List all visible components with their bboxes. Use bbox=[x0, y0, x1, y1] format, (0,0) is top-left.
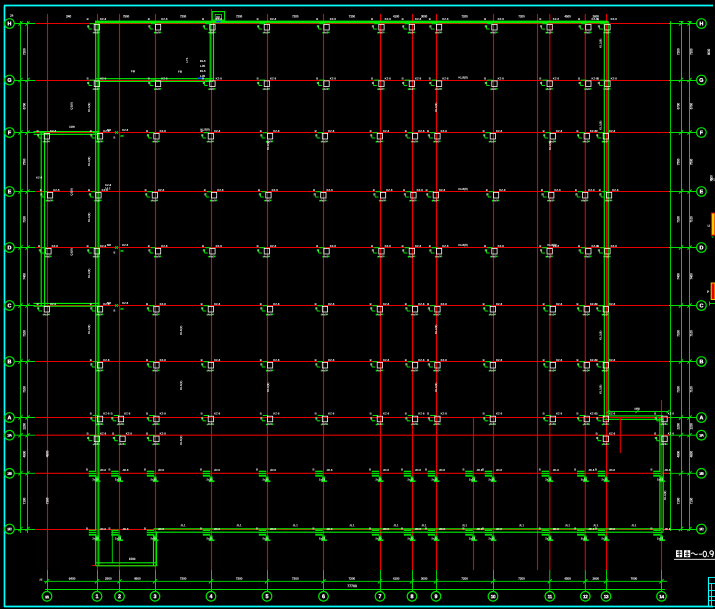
svg-text:B: B bbox=[86, 526, 88, 530]
svg-text:B: B bbox=[369, 526, 371, 530]
svg-text:2x15: 2x15 bbox=[601, 478, 608, 482]
svg-text:R: R bbox=[370, 135, 372, 138]
svg-text:KZ-8: KZ-8 bbox=[328, 358, 335, 362]
svg-text:R: R bbox=[485, 250, 487, 253]
svg-text:7200: 7200 bbox=[180, 577, 187, 581]
svg-text:KZ-8: KZ-8 bbox=[330, 17, 337, 21]
svg-text:KZ-8: KZ-8 bbox=[216, 244, 223, 248]
svg-text:B: B bbox=[462, 467, 464, 471]
svg-text:4x0: 4x0 bbox=[208, 368, 213, 372]
svg-text:B: B bbox=[370, 358, 372, 362]
svg-text:M8: M8 bbox=[107, 128, 111, 132]
svg-text:KZ-8: KZ-8 bbox=[556, 412, 563, 416]
svg-text:KZ-8: KZ-8 bbox=[609, 358, 616, 362]
svg-text:9: 9 bbox=[434, 594, 437, 600]
svg-text:Q1(8): Q1(8) bbox=[70, 248, 74, 255]
svg-text:4x0: 4x0 bbox=[434, 139, 439, 143]
svg-text:4x0: 4x0 bbox=[585, 30, 590, 34]
svg-text:A: A bbox=[699, 415, 703, 421]
svg-text:B: B bbox=[146, 358, 148, 362]
svg-text:2x15: 2x15 bbox=[115, 537, 122, 541]
svg-text:7400: 7400 bbox=[690, 273, 694, 280]
svg-text:B: B bbox=[256, 467, 258, 471]
svg-text:B: B bbox=[539, 244, 541, 248]
svg-text:2x15: 2x15 bbox=[431, 537, 438, 541]
svg-text:KL1(9): KL1(9) bbox=[266, 141, 270, 150]
svg-text:2x15: 2x15 bbox=[150, 537, 157, 541]
svg-text:R: R bbox=[543, 135, 545, 138]
svg-text:B: B bbox=[596, 358, 598, 362]
svg-text:KZ-8: KZ-8 bbox=[553, 76, 560, 80]
svg-text:4x0: 4x0 bbox=[380, 198, 385, 202]
svg-text:JD-8: JD-8 bbox=[158, 527, 165, 531]
svg-text:B: B bbox=[596, 302, 598, 306]
svg-text:B: B bbox=[38, 244, 40, 248]
svg-text:B: B bbox=[114, 135, 116, 139]
svg-text:JD-8: JD-8 bbox=[439, 527, 446, 531]
svg-text:B: B bbox=[370, 412, 372, 416]
svg-text:4x0: 4x0 bbox=[209, 254, 214, 258]
svg-text:B: B bbox=[483, 302, 485, 306]
svg-text:JD-8: JD-8 bbox=[553, 527, 560, 531]
svg-text:B: B bbox=[539, 526, 541, 530]
svg-text:B: B bbox=[88, 188, 90, 192]
svg-text:JD-8: JD-8 bbox=[664, 527, 671, 531]
svg-text:JL1: JL1 bbox=[565, 523, 571, 527]
svg-text:B: B bbox=[87, 76, 89, 80]
svg-text:KZ-8: KZ-8 bbox=[439, 188, 446, 192]
svg-text:KZ-8: KZ-8 bbox=[417, 188, 424, 192]
svg-text:7200: 7200 bbox=[690, 48, 694, 55]
svg-text:7100: 7100 bbox=[690, 216, 694, 223]
svg-text:B: B bbox=[597, 244, 599, 248]
svg-text:G: G bbox=[7, 78, 11, 84]
svg-text:4x0: 4x0 bbox=[45, 254, 50, 258]
svg-text:KZ-8: KZ-8 bbox=[327, 188, 334, 192]
svg-text:R: R bbox=[201, 135, 203, 138]
svg-text:JL1: JL1 bbox=[593, 523, 599, 527]
svg-text:4x0: 4x0 bbox=[118, 422, 123, 426]
svg-text:KZ.8: KZ.8 bbox=[122, 128, 129, 132]
svg-text:R: R bbox=[315, 417, 317, 420]
svg-text:R: R bbox=[405, 135, 407, 138]
svg-text:KZ-8: KZ-8 bbox=[124, 412, 131, 416]
svg-text:KL1(9): KL1(9) bbox=[599, 121, 603, 130]
svg-text:R: R bbox=[260, 364, 262, 367]
svg-text:R: R bbox=[483, 364, 485, 367]
svg-text:240: 240 bbox=[66, 15, 71, 19]
svg-text:KZ-8: KZ-8 bbox=[270, 76, 277, 80]
svg-text:R: R bbox=[428, 364, 430, 367]
svg-text:L30: L30 bbox=[200, 74, 206, 78]
svg-text:7500: 7500 bbox=[23, 158, 27, 165]
svg-text:KZ-8: KZ-8 bbox=[160, 358, 167, 362]
svg-text:KZ-8: KZ-8 bbox=[498, 244, 505, 248]
svg-text:A: A bbox=[8, 415, 12, 421]
svg-text:KZ-8: KZ-8 bbox=[609, 432, 616, 436]
svg-text:2200: 2200 bbox=[690, 423, 694, 430]
svg-text:7100: 7100 bbox=[23, 386, 27, 393]
svg-text:B: B bbox=[543, 129, 545, 133]
svg-text:B: B bbox=[146, 129, 148, 133]
svg-text:7100: 7100 bbox=[677, 386, 681, 393]
svg-text:KL1(9): KL1(9) bbox=[87, 103, 91, 112]
svg-text:EL5: EL5 bbox=[200, 69, 206, 73]
svg-text:R: R bbox=[317, 250, 319, 253]
svg-text:2x15: 2x15 bbox=[92, 478, 99, 482]
svg-text:R: R bbox=[147, 437, 149, 440]
svg-text:JL1: JL1 bbox=[631, 523, 637, 527]
svg-text:4x0: 4x0 bbox=[97, 368, 102, 372]
svg-text:KZ-8: KZ-8 bbox=[612, 188, 619, 192]
svg-text:KL1(9): KL1(9) bbox=[87, 325, 91, 334]
svg-text:7100: 7100 bbox=[690, 386, 694, 393]
svg-text:JD-8: JD-8 bbox=[496, 468, 503, 472]
svg-text:4x0: 4x0 bbox=[265, 198, 270, 202]
svg-text:KZ-8: KZ-8 bbox=[330, 244, 337, 248]
svg-text:7500: 7500 bbox=[690, 158, 694, 165]
svg-text:KZ-8: KZ-8 bbox=[385, 17, 392, 21]
svg-text:4x0: 4x0 bbox=[436, 30, 441, 34]
svg-text:B: B bbox=[539, 76, 541, 80]
svg-text:B: B bbox=[654, 432, 656, 436]
svg-text:JD-8: JD-8 bbox=[476, 468, 483, 472]
svg-text:R: R bbox=[90, 364, 92, 367]
svg-text:B: B bbox=[114, 250, 116, 254]
svg-text:R: R bbox=[405, 308, 407, 311]
svg-text:KZ-8: KZ-8 bbox=[158, 188, 165, 192]
svg-text:H: H bbox=[8, 21, 12, 27]
svg-text:R: R bbox=[596, 364, 598, 367]
svg-text:KZ-8: KZ-8 bbox=[270, 17, 277, 21]
svg-text:B: B bbox=[108, 526, 110, 530]
svg-text:KZ-8: KZ-8 bbox=[273, 358, 280, 362]
svg-text:4x0: 4x0 bbox=[606, 198, 611, 202]
svg-text:KZ-8: KZ-8 bbox=[328, 302, 335, 306]
svg-text:KL1(9): KL1(9) bbox=[434, 103, 438, 112]
svg-text:4x0: 4x0 bbox=[412, 139, 417, 143]
svg-text:4x0: 4x0 bbox=[94, 87, 99, 91]
svg-text:KL8(9): KL8(9) bbox=[547, 243, 556, 247]
svg-text:B: B bbox=[427, 412, 429, 416]
svg-text:B: B bbox=[541, 188, 543, 192]
svg-text:B: B bbox=[484, 17, 486, 21]
svg-text:JD-8: JD-8 bbox=[158, 468, 165, 472]
svg-text:R: R bbox=[90, 135, 92, 138]
svg-text:B: B bbox=[371, 17, 373, 21]
svg-text:JL1: JL1 bbox=[519, 523, 525, 527]
svg-text:7100: 7100 bbox=[690, 498, 694, 505]
svg-text:B: B bbox=[403, 188, 405, 192]
svg-text:R: R bbox=[37, 308, 39, 311]
svg-text:JL1: JL1 bbox=[462, 523, 468, 527]
svg-text:4x0: 4x0 bbox=[436, 254, 441, 258]
svg-text:R: R bbox=[203, 82, 205, 85]
svg-text:R: R bbox=[540, 26, 542, 29]
svg-text:KZ-8: KZ-8 bbox=[52, 244, 59, 248]
svg-text:JD-8: JD-8 bbox=[496, 527, 503, 531]
svg-text:B: B bbox=[200, 467, 202, 471]
svg-text:14.2: 14.2 bbox=[105, 186, 111, 190]
svg-text:E: E bbox=[700, 189, 704, 195]
svg-text:B: B bbox=[37, 129, 39, 133]
svg-text:4500: 4500 bbox=[564, 577, 571, 581]
svg-text:4x0: 4x0 bbox=[490, 368, 495, 372]
svg-text:KZ-8: KZ-8 bbox=[441, 412, 448, 416]
svg-text:KZ-8: KZ-8 bbox=[496, 412, 503, 416]
svg-text:B: B bbox=[402, 17, 404, 21]
svg-text:KL8(9): KL8(9) bbox=[458, 243, 467, 247]
svg-text:2x15: 2x15 bbox=[262, 537, 269, 541]
svg-text:KZ-8: KZ-8 bbox=[496, 358, 503, 362]
svg-text:R: R bbox=[201, 417, 203, 420]
svg-text:KZ-8: KZ-8 bbox=[273, 412, 280, 416]
svg-text:4x0: 4x0 bbox=[208, 312, 213, 316]
svg-text:B: B bbox=[148, 244, 150, 248]
svg-text:B: B bbox=[596, 432, 598, 436]
svg-text:KZ-8: KZ-8 bbox=[611, 76, 618, 80]
svg-text:4x0: 4x0 bbox=[378, 30, 383, 34]
svg-text:R: R bbox=[543, 308, 545, 311]
svg-text:KZ-8: KZ-8 bbox=[498, 17, 505, 21]
svg-text:B: B bbox=[202, 244, 204, 248]
svg-text:12: 12 bbox=[583, 594, 588, 599]
svg-text:KZ-8: KZ-8 bbox=[418, 412, 425, 416]
svg-text:B: B bbox=[427, 129, 429, 133]
svg-text:B: B bbox=[371, 244, 373, 248]
svg-text:4x0: 4x0 bbox=[267, 312, 272, 316]
svg-text:6700: 6700 bbox=[677, 103, 681, 110]
svg-text:8000: 8000 bbox=[707, 48, 711, 55]
svg-text:B: B bbox=[483, 412, 485, 416]
svg-text:B: B bbox=[148, 76, 150, 80]
svg-text:KZ-8: KZ-8 bbox=[126, 432, 133, 436]
svg-text:2x15: 2x15 bbox=[375, 478, 382, 482]
svg-text:4800: 4800 bbox=[46, 450, 50, 457]
svg-text:R: R bbox=[372, 250, 374, 253]
svg-text:KZ-8: KZ-8 bbox=[442, 17, 449, 21]
svg-text:R: R bbox=[257, 250, 259, 253]
svg-text:4x0: 4x0 bbox=[412, 422, 417, 426]
svg-text:R: R bbox=[201, 364, 203, 367]
svg-text:KZ-8: KZ-8 bbox=[385, 244, 392, 248]
svg-text:JD-8: JD-8 bbox=[326, 527, 333, 531]
svg-text:B: B bbox=[37, 302, 39, 306]
svg-text:2x15: 2x15 bbox=[407, 478, 414, 482]
svg-text:4x0: 4x0 bbox=[324, 30, 329, 34]
svg-text:R: R bbox=[596, 135, 598, 138]
svg-text:R: R bbox=[260, 417, 262, 420]
svg-text:R: R bbox=[405, 417, 407, 420]
svg-text:4x0: 4x0 bbox=[409, 30, 414, 34]
svg-text:KZ-8: KZ-8 bbox=[53, 188, 60, 192]
svg-text:4x0: 4x0 bbox=[603, 139, 608, 143]
svg-text:B: B bbox=[574, 526, 576, 530]
svg-text:7100: 7100 bbox=[23, 330, 27, 337]
svg-text:R: R bbox=[598, 26, 600, 29]
svg-text:4500: 4500 bbox=[564, 14, 571, 18]
svg-text:4x0: 4x0 bbox=[377, 312, 382, 316]
svg-text:2200: 2200 bbox=[677, 423, 681, 430]
svg-text:7200: 7200 bbox=[180, 14, 187, 18]
svg-text:KL8(9): KL8(9) bbox=[458, 75, 467, 79]
svg-text:B: B bbox=[257, 244, 259, 248]
svg-text:6: 6 bbox=[322, 594, 325, 600]
svg-text:B: B bbox=[258, 188, 260, 192]
svg-text:JL1: JL1 bbox=[236, 523, 242, 527]
svg-text:KZ-8: KZ-8 bbox=[217, 188, 224, 192]
svg-text:R: R bbox=[579, 82, 581, 85]
svg-text:7200: 7200 bbox=[461, 14, 468, 18]
svg-text:KZ-8: KZ-8 bbox=[161, 76, 168, 80]
svg-text:R: R bbox=[373, 194, 375, 197]
svg-text:4x0: 4x0 bbox=[412, 312, 417, 316]
svg-text:KZ-8: KZ-8 bbox=[442, 244, 449, 248]
svg-text:7100: 7100 bbox=[677, 497, 681, 504]
svg-text:B: B bbox=[313, 188, 315, 192]
svg-text:B: B bbox=[484, 76, 486, 80]
svg-text:4x0: 4x0 bbox=[548, 198, 553, 202]
svg-text:4x0: 4x0 bbox=[547, 30, 552, 34]
svg-text:B: B bbox=[401, 526, 403, 530]
svg-text:4x0: 4x0 bbox=[604, 87, 609, 91]
svg-text:R: R bbox=[204, 194, 206, 197]
svg-text:4x0: 4x0 bbox=[153, 368, 158, 372]
svg-text:R: R bbox=[428, 308, 430, 311]
svg-text:R: R bbox=[203, 26, 205, 29]
svg-text:B: B bbox=[256, 526, 258, 530]
svg-text:KL1(9): KL1(9) bbox=[599, 385, 603, 394]
svg-text:B: B bbox=[484, 244, 486, 248]
svg-text:JL1: JL1 bbox=[349, 523, 355, 527]
svg-text:7100: 7100 bbox=[23, 497, 27, 504]
svg-text:7400: 7400 bbox=[23, 273, 27, 280]
svg-text:B: B bbox=[370, 129, 372, 133]
svg-text:4100: 4100 bbox=[393, 577, 400, 581]
svg-text:B: B bbox=[86, 467, 88, 471]
svg-text:2600: 2600 bbox=[592, 14, 599, 18]
svg-text:4x0: 4x0 bbox=[97, 312, 102, 316]
svg-text:2200: 2200 bbox=[23, 423, 27, 430]
svg-text:*: * bbox=[711, 236, 713, 242]
svg-text:B: B bbox=[260, 412, 262, 416]
svg-text:JD-8: JD-8 bbox=[609, 468, 616, 472]
svg-text:R: R bbox=[87, 250, 89, 253]
svg-text:B: B bbox=[87, 432, 89, 436]
svg-text:P1: P1 bbox=[711, 178, 715, 182]
svg-text:KZ-8: KZ-8 bbox=[496, 129, 503, 133]
svg-text:4x0: 4x0 bbox=[155, 87, 160, 91]
svg-text:2x15: 2x15 bbox=[115, 478, 122, 482]
svg-text:R: R bbox=[317, 82, 319, 85]
svg-text:R: R bbox=[483, 135, 485, 138]
svg-text:B: B bbox=[87, 244, 89, 248]
svg-text:R: R bbox=[404, 194, 406, 197]
svg-text:KZ-8: KZ-8 bbox=[161, 244, 168, 248]
svg-text:B: B bbox=[315, 302, 317, 306]
svg-text:4x0: 4x0 bbox=[324, 87, 329, 91]
svg-text:R: R bbox=[113, 437, 115, 440]
svg-text:6700: 6700 bbox=[23, 103, 27, 110]
svg-text:2x15: 2x15 bbox=[375, 537, 382, 541]
svg-text:B: B bbox=[111, 412, 113, 416]
svg-text:KZ.8: KZ.8 bbox=[122, 243, 129, 247]
svg-text:L30: L30 bbox=[200, 64, 206, 68]
svg-text:B: B bbox=[204, 188, 206, 192]
svg-text:2x15: 2x15 bbox=[407, 537, 414, 541]
svg-text:M8: M8 bbox=[107, 301, 111, 305]
svg-text:R: R bbox=[483, 308, 485, 311]
svg-text:KL1(9): KL1(9) bbox=[548, 141, 552, 150]
svg-text:10: 10 bbox=[491, 594, 496, 599]
svg-text:B: B bbox=[599, 188, 601, 192]
svg-text:4: 4 bbox=[209, 594, 212, 600]
svg-text:4800: 4800 bbox=[690, 451, 694, 458]
svg-text:4x0: 4x0 bbox=[44, 312, 49, 316]
svg-text:7200: 7200 bbox=[349, 14, 356, 18]
svg-text:JL1: JL1 bbox=[180, 523, 186, 527]
svg-text:4x0: 4x0 bbox=[412, 368, 417, 372]
svg-text:4x0: 4x0 bbox=[377, 422, 382, 426]
svg-text:KZ-8: KZ-8 bbox=[383, 412, 390, 416]
svg-text:R: R bbox=[148, 26, 150, 29]
svg-text:KZ-8: KZ-8 bbox=[588, 188, 595, 192]
svg-text:4x0: 4x0 bbox=[94, 254, 99, 258]
svg-text:JD-8: JD-8 bbox=[100, 468, 107, 472]
svg-text:R: R bbox=[543, 364, 545, 367]
svg-text:B: B bbox=[316, 76, 318, 80]
svg-text:R: R bbox=[40, 194, 42, 197]
svg-text:KL8(9): KL8(9) bbox=[200, 127, 209, 131]
svg-text:B: B bbox=[108, 467, 110, 471]
svg-text:B: B bbox=[146, 412, 148, 416]
svg-text:R: R bbox=[655, 437, 657, 440]
svg-text:B: B bbox=[402, 76, 404, 80]
svg-text:4x0: 4x0 bbox=[604, 30, 609, 34]
svg-text:4x0: 4x0 bbox=[603, 368, 608, 372]
svg-text:B: B bbox=[543, 412, 545, 416]
svg-text:R: R bbox=[540, 82, 542, 85]
svg-text:6700: 6700 bbox=[690, 103, 694, 110]
svg-text:JD-8: JD-8 bbox=[214, 468, 221, 472]
svg-text:B: B bbox=[90, 358, 92, 362]
svg-text:2x15: 2x15 bbox=[657, 478, 664, 482]
svg-text:4x0: 4x0 bbox=[377, 368, 382, 372]
svg-text:B: B bbox=[405, 412, 407, 416]
svg-text:4x0: 4x0 bbox=[493, 198, 498, 202]
svg-text:B: B bbox=[402, 244, 404, 248]
svg-text:KZ-8: KZ-8 bbox=[161, 17, 168, 21]
svg-text:4x0: 4x0 bbox=[662, 442, 667, 446]
svg-text:B: B bbox=[427, 358, 429, 362]
svg-text:4x0: 4x0 bbox=[322, 312, 327, 316]
svg-text:JD-8: JD-8 bbox=[383, 468, 390, 472]
svg-text:KZ-8: KZ-8 bbox=[100, 244, 107, 248]
svg-text:R: R bbox=[426, 194, 428, 197]
svg-text:2x15: 2x15 bbox=[601, 537, 608, 541]
svg-text:B: B bbox=[578, 244, 580, 248]
svg-text:B: B bbox=[574, 467, 576, 471]
svg-text:4x0: 4x0 bbox=[409, 87, 414, 91]
svg-text:KZ-8: KZ-8 bbox=[160, 432, 167, 436]
svg-text:R: R bbox=[428, 417, 430, 420]
svg-text:4x0: 4x0 bbox=[436, 87, 441, 91]
svg-text:KZ-8: KZ-8 bbox=[556, 358, 563, 362]
svg-text:4x0: 4x0 bbox=[153, 312, 158, 316]
svg-text:KZ-8: KZ-8 bbox=[160, 129, 167, 133]
svg-text:B: B bbox=[426, 188, 428, 192]
svg-text:7200: 7200 bbox=[236, 14, 243, 18]
